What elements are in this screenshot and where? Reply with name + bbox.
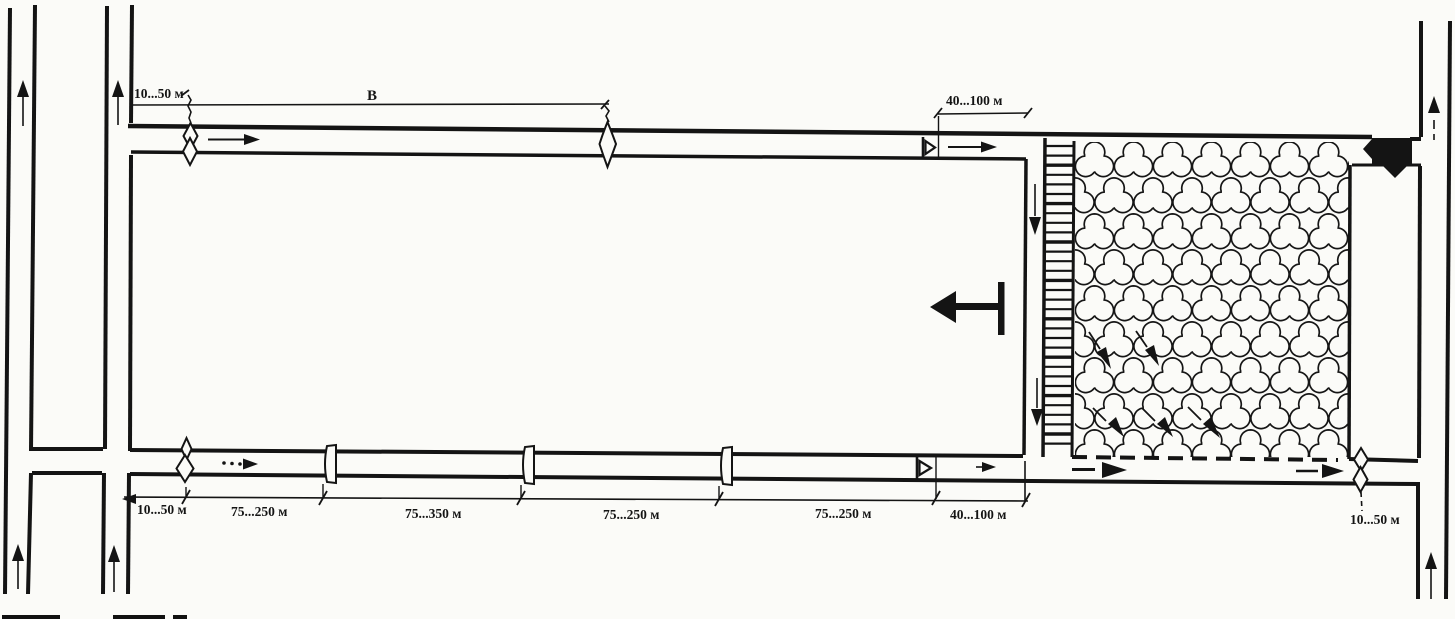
svg-text:10...50 м: 10...50 м	[1350, 512, 1400, 527]
svg-text:В: В	[367, 88, 377, 104]
svg-text:75...250 м: 75...250 м	[231, 504, 287, 519]
svg-text:40...100 м: 40...100 м	[950, 507, 1006, 522]
svg-text:75...250 м: 75...250 м	[815, 506, 871, 521]
svg-text:40...100 м: 40...100 м	[946, 93, 1002, 108]
svg-text:75...250 м: 75...250 м	[603, 507, 659, 522]
svg-text:10...50 м: 10...50 м	[137, 502, 187, 517]
svg-text:75...350 м: 75...350 м	[405, 506, 461, 521]
svg-text:10...50 м: 10...50 м	[134, 86, 184, 101]
